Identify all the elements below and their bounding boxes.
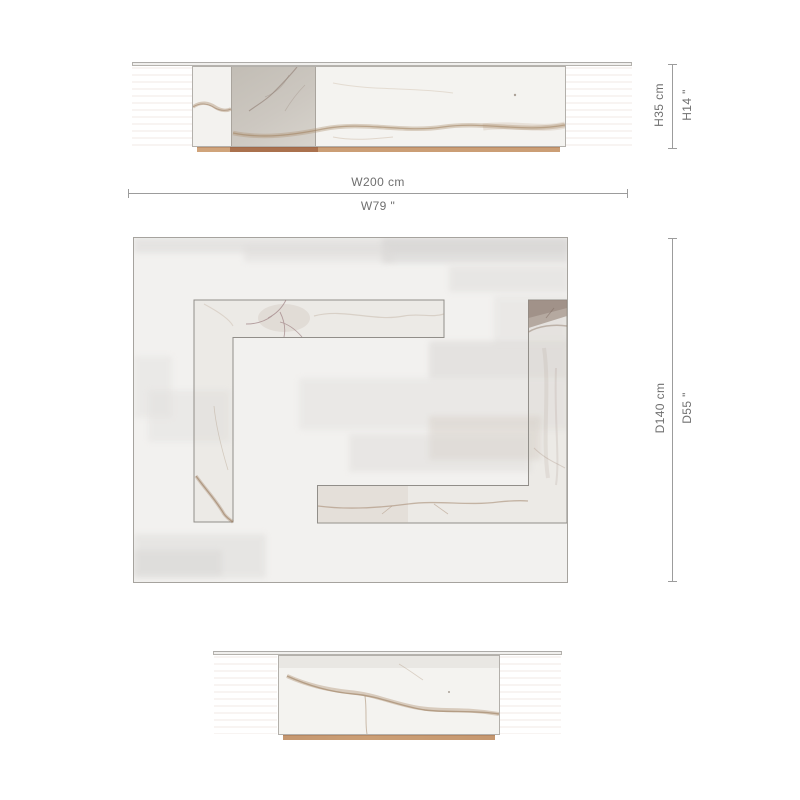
side-plinth (283, 735, 495, 740)
depth-dimension-cap-top (668, 238, 677, 239)
height-dimension-line (672, 64, 673, 149)
depth-imperial-label: D55 " (680, 392, 694, 424)
width-imperial-label: W79 " (361, 199, 395, 213)
side-base-block (278, 655, 500, 735)
front-view: H35 cm H14 " W200 cm W79 " (0, 0, 800, 230)
height-metric-label: H35 cm (652, 83, 666, 127)
width-dimension-cap-left (128, 189, 129, 198)
front-plinth (197, 147, 560, 152)
width-dimension-cap-right (627, 189, 628, 198)
side-watermark-stripes-right (500, 656, 561, 734)
side-watermark-stripes-left (214, 656, 277, 734)
width-dimension-line (128, 193, 628, 194)
side-view (0, 620, 800, 800)
plan-view (133, 237, 568, 583)
front-watermark-stripes-right (566, 67, 632, 147)
technical-drawing-canvas: H35 cm H14 " W200 cm W79 " (0, 0, 800, 800)
height-dimension-cap-bottom (668, 148, 677, 149)
side-marble-veins-svg (279, 656, 499, 734)
front-base-block (192, 66, 566, 147)
width-metric-label: W200 cm (351, 175, 404, 189)
depth-dimension-cap-bottom (668, 581, 677, 582)
plan-base-outline-svg (134, 238, 567, 582)
front-watermark-stripes-left (132, 67, 192, 147)
front-marble-veins-svg (193, 67, 565, 146)
depth-metric-label: D140 cm (653, 383, 667, 434)
depth-dimension-line (672, 238, 673, 582)
height-imperial-label: H14 " (680, 89, 694, 121)
height-dimension-cap-top (668, 64, 677, 65)
